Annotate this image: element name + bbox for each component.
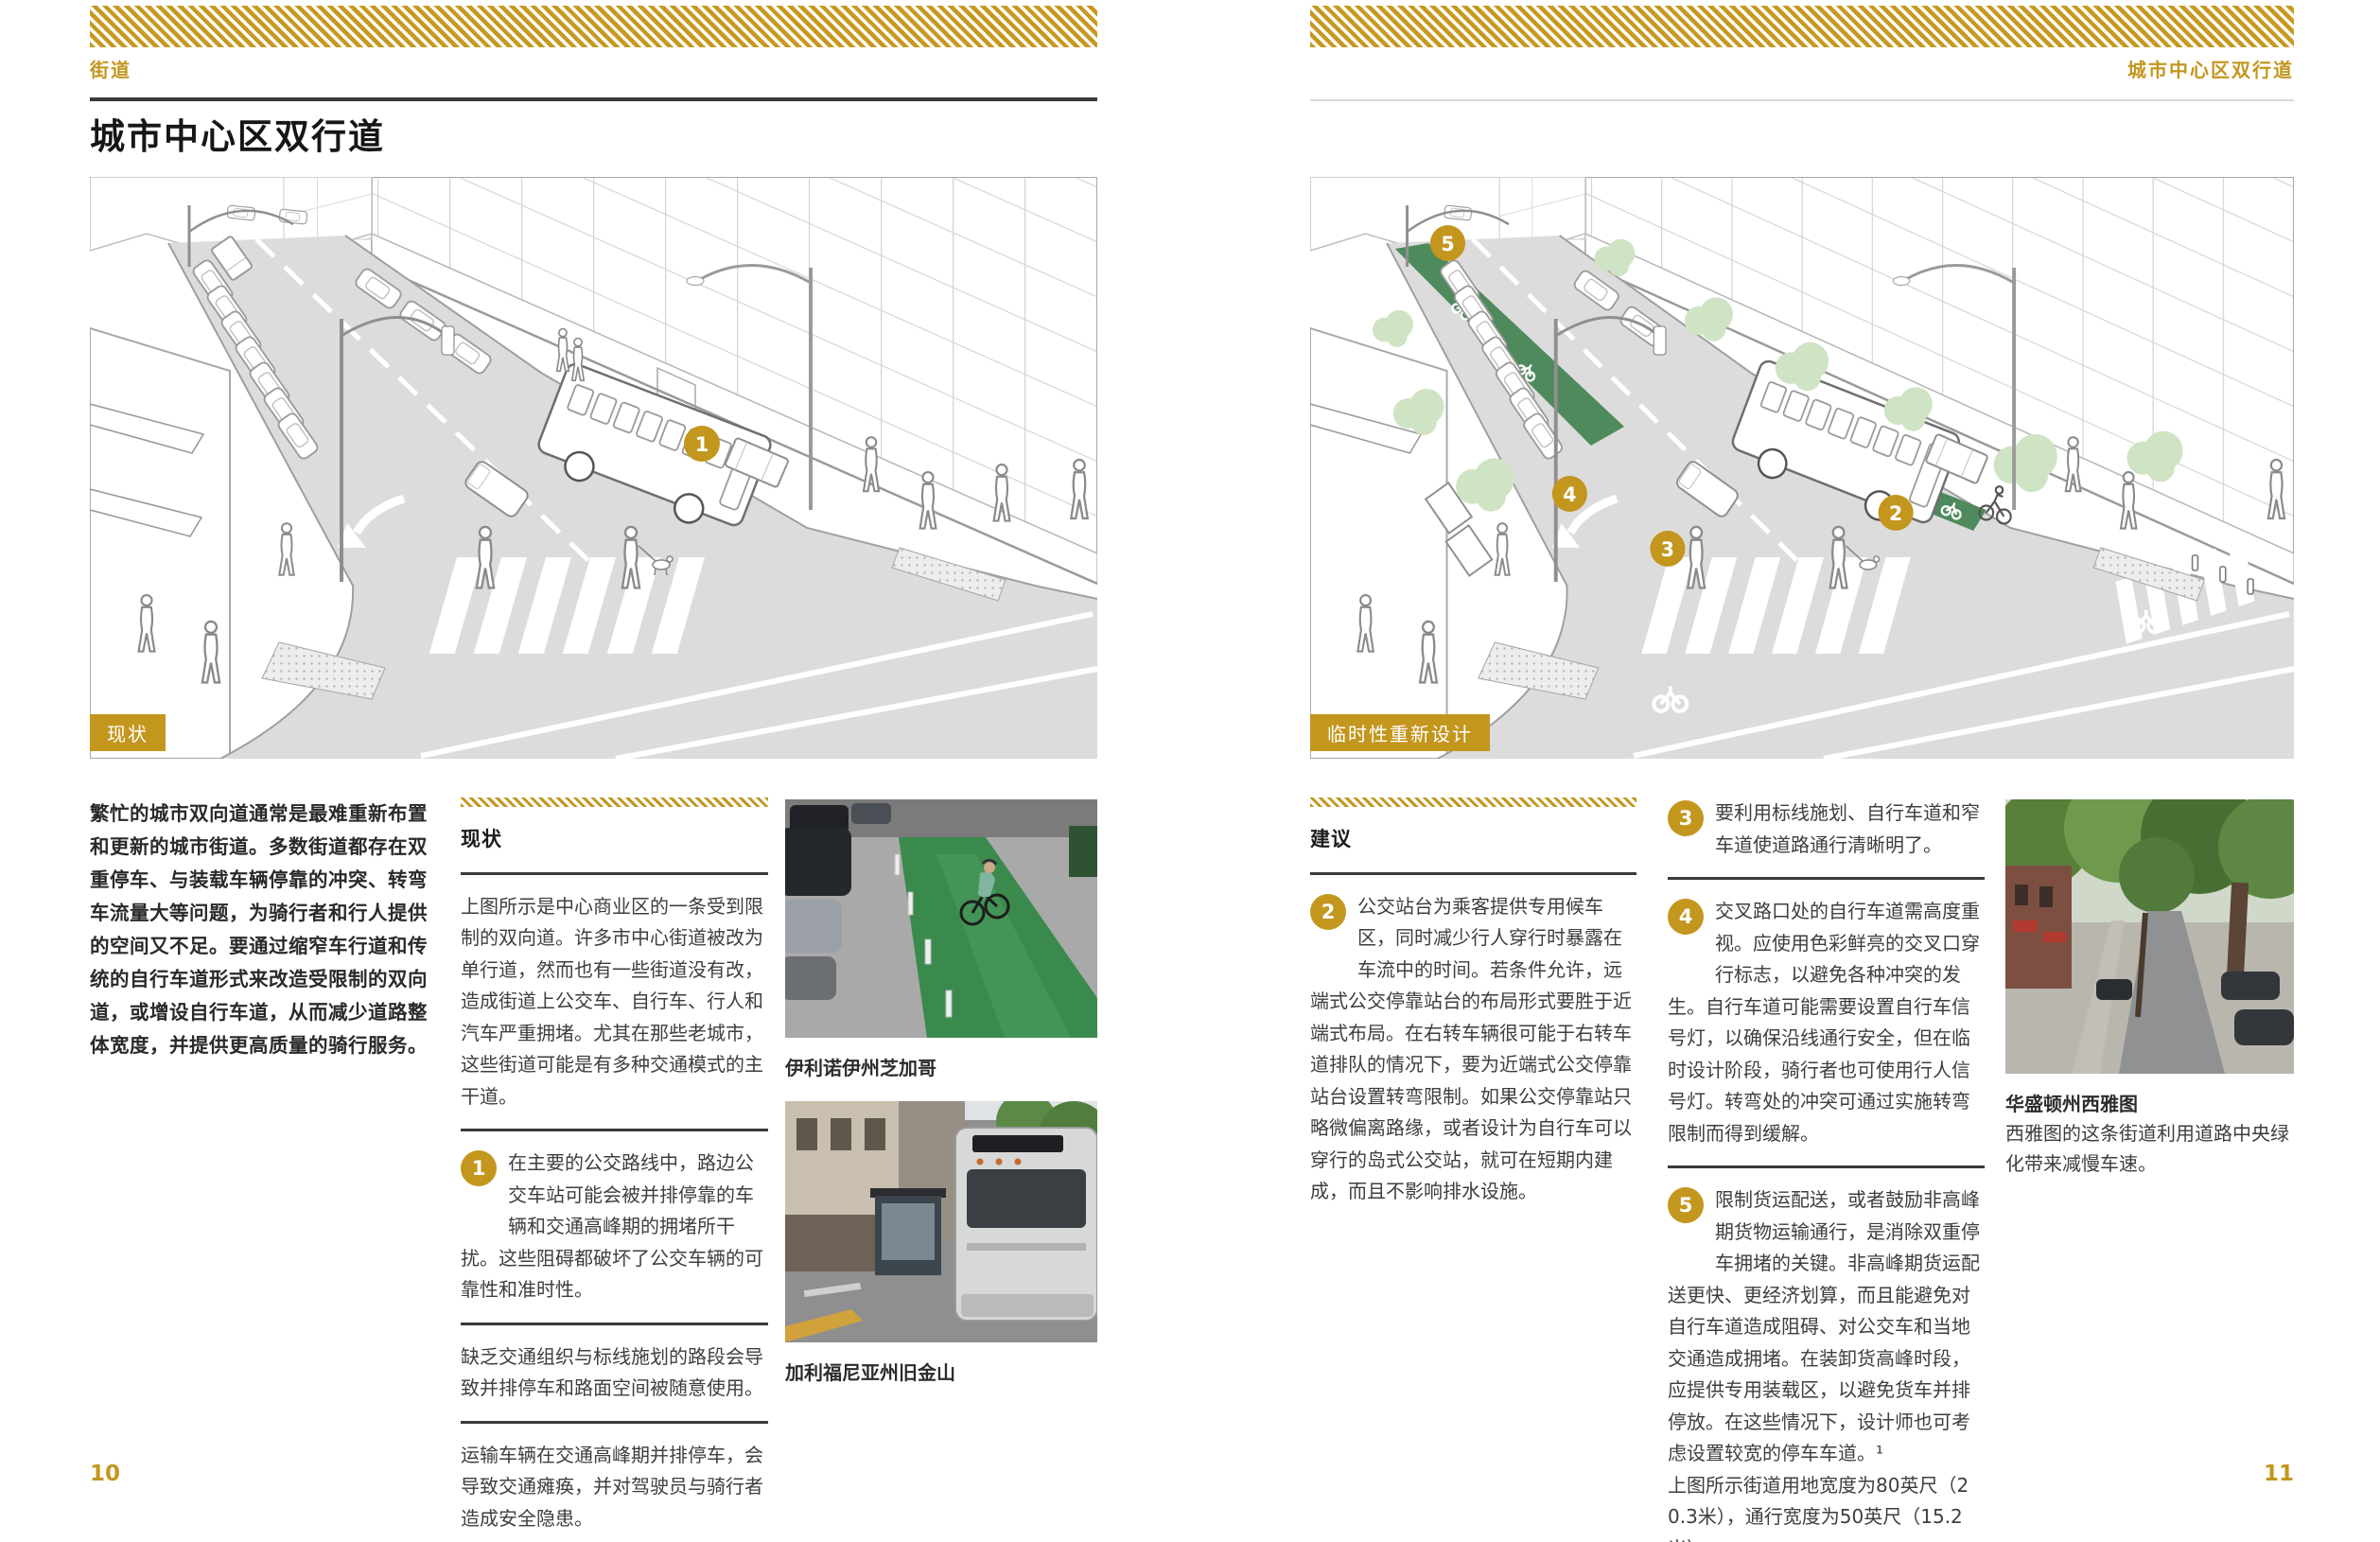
title-rule: [90, 97, 1097, 101]
item-5-text: 限制货运配送，或者鼓励非高峰期货物运输通行，是消除双重停车拥堵的关键。非高峰期货…: [1668, 1184, 1985, 1470]
illustration-redesign: 5 4 3 2 临时性重新设计: [1310, 177, 2294, 759]
intro-paragraph: 繁忙的城市双向道通常是最难重新布置和更新的城市街道。多数街道都存在双重停车、与装…: [90, 797, 445, 1062]
breadcrumb-right: 城市中心区双行道: [1310, 55, 2294, 82]
marker-badge-5: 5: [1668, 1187, 1704, 1223]
illustration-redesign-svg: 5 4 3 2: [1310, 177, 2294, 759]
building-left: [90, 328, 230, 759]
svg-text:4: 4: [1563, 483, 1576, 506]
header-stripe-right: [1310, 6, 2294, 47]
item-2-text: 公交站台为乘客提供专用候车区，同时减少行人穿行时暴露在车流中的时间。若条件允许，…: [1310, 891, 1636, 1208]
svg-text:2: 2: [1889, 502, 1902, 525]
illustration-label-existing: 现状: [90, 714, 166, 751]
photo-seattle-image: [2005, 799, 2294, 1074]
illustration-existing: 1 现状: [90, 177, 1097, 759]
section-heading-existing: 现状: [461, 824, 768, 856]
illustration-label-redesign: 临时性重新设计: [1310, 714, 1490, 751]
divider: [1668, 1165, 1985, 1168]
numbered-item-4: 4 交叉路口处的自行车道需高度重视。应使用色彩鲜亮的交叉口穿行标志，以避免各种冲…: [1668, 896, 1985, 1149]
photo-seattle-description: 西雅图的这条街道利用道路中央绿化带来减慢车速。: [2005, 1118, 2294, 1179]
photo-sanfrancisco-caption: 加利福尼亚州旧金山: [785, 1358, 1097, 1385]
page-number-left: 10: [90, 1462, 120, 1486]
item-1-text: 在主要的公交路线中，路边公交车站可能会被并排停靠的车辆和交通高峰期的拥堵所干扰。…: [461, 1148, 768, 1306]
numbered-item-1: 1 在主要的公交路线中，路边公交车站可能会被并排停靠的车辆和交通高峰期的拥堵所干…: [461, 1148, 768, 1306]
marker-1: 1: [684, 426, 720, 462]
guide-spread: 街道 城市中心区双行道: [0, 0, 2380, 1542]
illustration-existing-svg: 1: [90, 177, 1097, 759]
marker-4: 4: [1552, 476, 1587, 512]
photo-column-left: 伊利诺伊州芝加哥: [785, 799, 1097, 1406]
hatch-divider: [1310, 797, 1636, 807]
existing-para-3: 运输车辆在交通高峰期并排停车，会导致交通瘫痪，并对驾驶员与骑行者造成安全隐患。: [461, 1440, 768, 1535]
photo-chicago-caption: 伊利诺伊州芝加哥: [785, 1053, 1097, 1080]
header-stripe-left: [90, 6, 1097, 47]
column-recommendations-2: 3 要利用标线施划、自行车道和窄车道使道路通行清晰明了。 4 交叉路口处的自行车…: [1668, 797, 1985, 1542]
divider: [1310, 872, 1636, 875]
marker-2: 2: [1879, 495, 1914, 531]
photo-chicago: 伊利诺伊州芝加哥: [785, 799, 1097, 1080]
marker-badge-3: 3: [1668, 800, 1704, 836]
divider: [1668, 877, 1985, 880]
numbered-item-5: 5 限制货运配送，或者鼓励非高峰期货物运输通行，是消除双重停车拥堵的关键。非高峰…: [1668, 1184, 1985, 1470]
bus-front: [955, 1128, 1097, 1321]
divider: [461, 872, 768, 875]
photo-sanfrancisco: 加利福尼亚州旧金山: [785, 1101, 1097, 1385]
photo-chicago-image: [785, 799, 1097, 1038]
bus-shelter: [870, 1188, 946, 1275]
svg-text:1: 1: [695, 433, 709, 456]
hatch-divider: [461, 797, 768, 807]
page-title: 城市中心区双行道: [90, 108, 385, 159]
svg-text:5: 5: [1441, 233, 1454, 255]
item-4-text: 交叉路口处的自行车道需高度重视。应使用色彩鲜亮的交叉口穿行标志，以避免各种冲突的…: [1668, 896, 1985, 1149]
existing-para-1: 上图所示是中心商业区的一条受到限制的双向道。许多市中心街道被改为单行道，然而也有…: [461, 891, 768, 1113]
photo-seattle: 华盛顿州西雅图 西雅图的这条街道利用道路中央绿化带来减慢车速。: [2005, 799, 2294, 1179]
page-number-right: 11: [1310, 1462, 2294, 1486]
marker-badge-2: 2: [1310, 894, 1346, 930]
divider: [461, 1421, 768, 1424]
column-recommendations-1: 建议 2 公交站台为乘客提供专用候车区，同时减少行人穿行时暴露在车流中的时间。若…: [1310, 797, 1636, 1208]
divider: [461, 1129, 768, 1131]
photo-sanfrancisco-image: [785, 1101, 1097, 1342]
photo-column-right: 华盛顿州西雅图 西雅图的这条街道利用道路中央绿化带来减慢车速。: [2005, 799, 2294, 1179]
svg-text:3: 3: [1661, 538, 1674, 561]
photo-seattle-caption: 华盛顿州西雅图: [2005, 1089, 2294, 1116]
existing-para-2: 缺乏交通组织与标线施划的路段会导致并排停车和路面空间被随意使用。: [461, 1341, 768, 1405]
breadcrumb-left: 街道: [90, 55, 131, 82]
item-3-text: 要利用标线施划、自行车道和窄车道使道路通行清晰明了。: [1668, 797, 1985, 861]
marker-badge-4: 4: [1668, 899, 1704, 935]
column-existing: 现状 上图所示是中心商业区的一条受到限制的双向道。许多市中心街道被改为单行道，然…: [461, 797, 768, 1534]
numbered-item-3: 3 要利用标线施划、自行车道和窄车道使道路通行清晰明了。: [1668, 797, 1985, 861]
marker-3: 3: [1650, 531, 1685, 567]
marker-5: 5: [1430, 225, 1465, 261]
divider: [461, 1323, 768, 1325]
marker-badge-1: 1: [461, 1150, 497, 1186]
numbered-item-2: 2 公交站台为乘客提供专用候车区，同时减少行人穿行时暴露在车流中的时间。若条件允…: [1310, 891, 1636, 1208]
section-heading-recommendations: 建议: [1310, 824, 1636, 856]
header-rule-right: [1310, 99, 2294, 101]
